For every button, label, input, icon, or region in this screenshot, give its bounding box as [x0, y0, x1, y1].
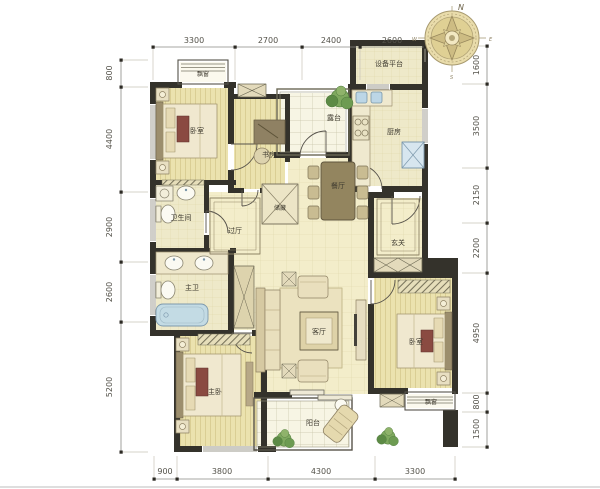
- label-balcony: 阳台: [306, 418, 320, 427]
- toilet: [156, 281, 175, 299]
- bay-cabinet: [380, 394, 404, 407]
- compass-south-label: S: [450, 75, 454, 81]
- window-kitchen-right: [422, 108, 428, 144]
- compass-north-label: N: [458, 3, 464, 12]
- plant-outside: [377, 427, 399, 445]
- sink-basin: [371, 92, 382, 103]
- label-hallway: 过厅: [228, 226, 242, 235]
- dim-right-6: 800: [472, 394, 481, 409]
- dim-top-4: 2600: [382, 36, 402, 45]
- label-bathroom: 卫生间: [171, 213, 192, 222]
- floor-plan-page: 飘窗 卧室 书房 设备平台 露台 厨房 餐厅 玄关 卫生间 过厅 储藏 主卫 主…: [0, 0, 600, 489]
- label-foyer: 玄关: [391, 238, 405, 247]
- dim-left-1: 800: [105, 65, 114, 80]
- dim-right-4: 2200: [472, 238, 481, 258]
- stove: [353, 116, 369, 140]
- label-bay-window-top: 飘窗: [197, 70, 209, 78]
- dim-right-3: 2150: [472, 185, 481, 205]
- basin: [195, 256, 213, 270]
- label-bedroom-1: 卧室: [190, 126, 204, 135]
- dim-left-2: 4400: [105, 129, 114, 149]
- window-left-master-bath: [150, 274, 156, 316]
- sofa: [256, 288, 280, 372]
- dim-bottom-1: 900: [157, 467, 172, 476]
- label-kitchen: 厨房: [387, 127, 401, 136]
- tv-cabinet: [354, 300, 366, 360]
- label-storage: 储藏: [274, 204, 286, 212]
- window-kitchen-pass: [366, 84, 390, 90]
- label-terrace: 露台: [327, 113, 341, 122]
- shoe-cabinet: [374, 258, 422, 272]
- dimension-bottom: 900 3800 4300 3300: [153, 456, 457, 481]
- basin: [165, 256, 183, 270]
- label-dining-room: 餐厅: [331, 181, 345, 190]
- window-left-bedroom1: [150, 104, 156, 160]
- dim-left-5: 5200: [105, 377, 114, 397]
- bed-master: [176, 352, 241, 418]
- shaft: [402, 142, 424, 168]
- dim-left-3: 2900: [105, 217, 114, 237]
- window-left-bathroom: [150, 198, 156, 242]
- bench: [246, 362, 253, 406]
- closet-rod: [198, 334, 250, 345]
- dim-bottom-4: 3300: [405, 467, 425, 476]
- window-master-bedroom-bottom: [202, 446, 258, 452]
- closet-rod: [398, 280, 450, 293]
- dim-right-5: 4950: [472, 323, 481, 343]
- dim-top-1: 3300: [184, 36, 204, 45]
- label-study: 书房: [262, 150, 276, 159]
- dim-right-2: 3500: [472, 116, 481, 136]
- dim-left-4: 2600: [105, 282, 114, 302]
- dimension-left: 800 4400 2900 2600 5200: [105, 59, 148, 454]
- compass-east-label: E: [489, 37, 493, 43]
- washer: [156, 186, 173, 201]
- floor-plan-drawing: 飘窗 卧室 书房 设备平台 露台 厨房 餐厅 玄关 卫生间 过厅 储藏 主卫 主…: [0, 0, 600, 489]
- label-master-bedroom: 主卧: [208, 387, 222, 396]
- bathtub: [156, 304, 208, 326]
- label-master-bathroom: 主卫: [185, 283, 199, 292]
- label-equipment-platform: 设备平台: [375, 59, 403, 68]
- label-bay-window-bottom: 飘窗: [425, 398, 437, 406]
- bed-bedroom1: [156, 102, 217, 160]
- high-window-hatch: [162, 180, 204, 185]
- label-bedroom-2: 卧室: [409, 337, 423, 346]
- dimension-right: 1600 3500 2150 2200 4950 800 1500: [462, 45, 489, 449]
- dim-top-2: 2700: [258, 36, 278, 45]
- basin: [177, 186, 195, 200]
- label-living-room: 客厅: [312, 327, 326, 336]
- dim-right-7: 1500: [472, 419, 481, 439]
- dim-right-1: 1600: [472, 55, 481, 75]
- dining-set: [308, 162, 368, 220]
- dim-top-3: 2400: [321, 36, 341, 45]
- dim-bottom-2: 3800: [212, 467, 232, 476]
- closet-bedroom1: [238, 84, 266, 97]
- bed-bedroom2: [397, 312, 452, 370]
- dim-bottom-3: 4300: [311, 467, 331, 476]
- storage-cabinet: [262, 184, 298, 224]
- sink-basin: [356, 92, 367, 103]
